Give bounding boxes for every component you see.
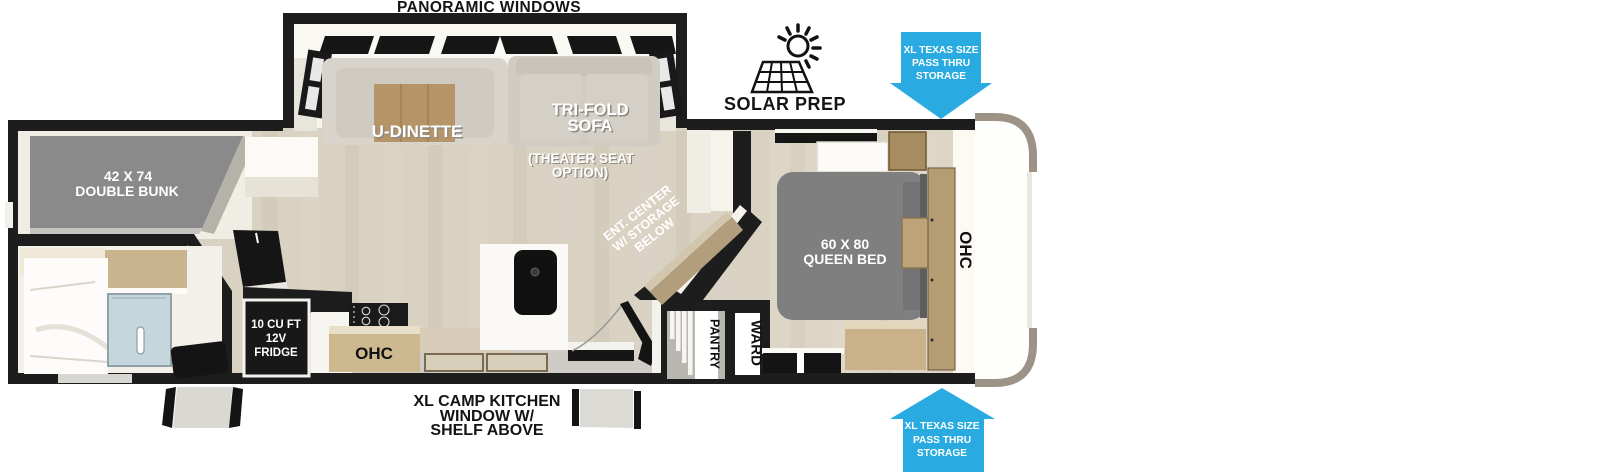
svg-text:U-DINETTE: U-DINETTE	[372, 122, 463, 141]
svg-text:DOUBLE BUNK: DOUBLE BUNK	[75, 183, 178, 199]
svg-text:STORAGE: STORAGE	[917, 448, 967, 459]
svg-text:WARD: WARD	[748, 320, 765, 366]
svg-text:QUEEN BED: QUEEN BED	[803, 251, 886, 267]
svg-text:SOLAR PREP: SOLAR PREP	[724, 94, 846, 114]
svg-text:12V: 12V	[266, 333, 287, 345]
svg-text:XL TEXAS SIZE: XL TEXAS SIZE	[903, 45, 978, 56]
svg-text:(THEATER SEAT: (THEATER SEAT	[528, 151, 635, 166]
svg-text:OHC: OHC	[956, 231, 975, 269]
svg-text:PANTRY: PANTRY	[708, 319, 722, 370]
svg-text:PASS THRU: PASS THRU	[912, 58, 970, 69]
svg-text:PASS THRU: PASS THRU	[913, 435, 971, 446]
svg-text:FRIDGE: FRIDGE	[254, 347, 298, 359]
svg-text:OHC: OHC	[355, 344, 393, 363]
svg-text:XL TEXAS SIZE: XL TEXAS SIZE	[904, 421, 979, 432]
svg-text:42 X 74: 42 X 74	[104, 168, 152, 184]
svg-text:OPTION): OPTION)	[552, 165, 608, 180]
svg-text:10 CU FT: 10 CU FT	[251, 319, 301, 331]
svg-text:60 X 80: 60 X 80	[821, 236, 869, 252]
svg-text:SOFA: SOFA	[568, 117, 613, 135]
svg-text:SHELF ABOVE: SHELF ABOVE	[430, 422, 544, 439]
svg-text:STORAGE: STORAGE	[916, 71, 966, 82]
